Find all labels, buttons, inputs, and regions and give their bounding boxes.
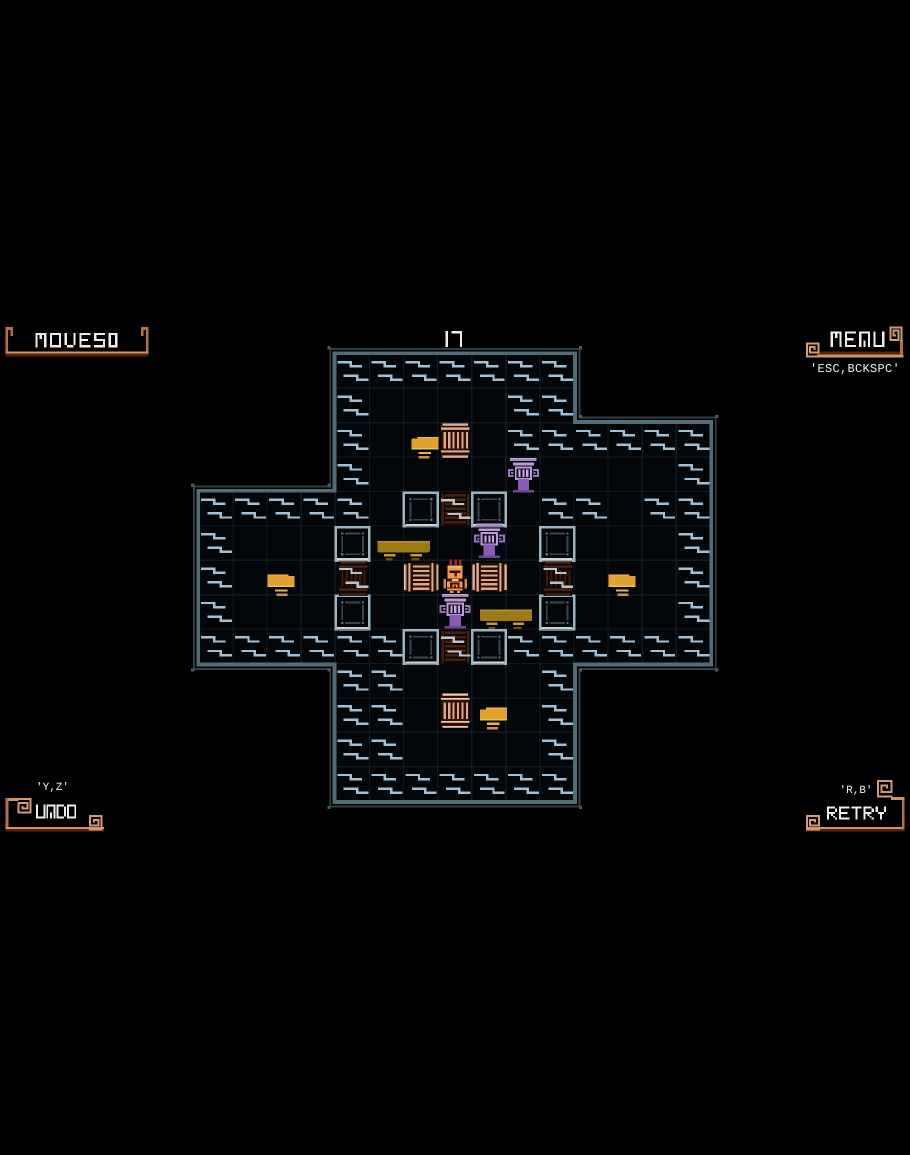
svg-text:'R,B': 'R,B' bbox=[840, 785, 873, 797]
svg-text:'Y,Z': 'Y,Z' bbox=[36, 782, 69, 794]
svg-text:'ESC,BCKSPC': 'ESC,BCKSPC' bbox=[810, 362, 900, 376]
